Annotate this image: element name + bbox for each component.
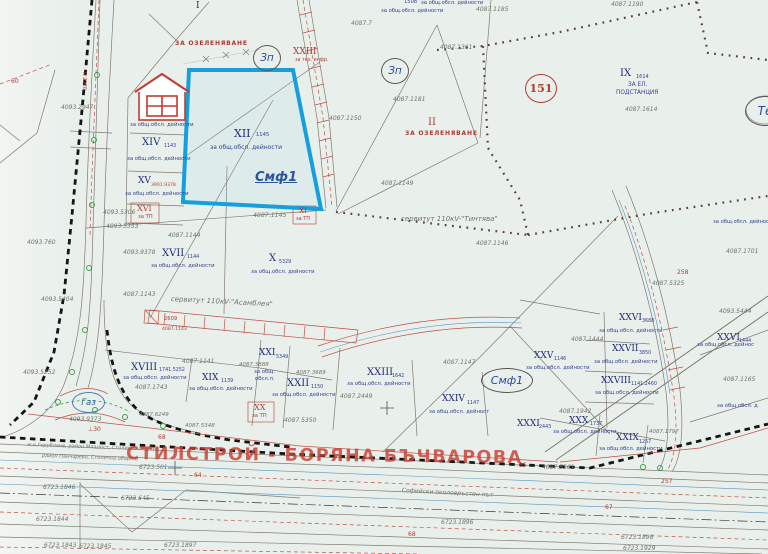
map-label: 4087.1150 — [329, 116, 361, 122]
map-label: XXVI — [619, 314, 642, 323]
map-label: за общ.обсл. дейности — [151, 264, 215, 269]
map-label: за общ.обсл. дейности — [347, 382, 411, 387]
map-linework — [0, 0, 768, 554]
map-label: Смф1 — [255, 171, 297, 184]
map-label: 4087.1190 — [611, 2, 643, 8]
map-label: XXIII — [367, 368, 393, 378]
map-label: 257 — [661, 479, 672, 485]
zone-circle-151: 151 — [525, 74, 557, 103]
map-label: 1146 — [554, 358, 566, 363]
map-label: 1614 — [636, 75, 649, 80]
map-label: 68 — [408, 532, 416, 538]
map-label: за тех. инфр. — [295, 59, 329, 64]
map-label: сервитут 110кV-"Тинтява" — [401, 216, 498, 223]
map-label: за общ.обсл. дейности — [595, 391, 659, 396]
map-label: ЗА ЕЛ. — [628, 83, 647, 89]
map-label: XXX — [569, 417, 588, 426]
map-label: X — [269, 254, 276, 264]
map-label: за общ.обсл. дейности — [130, 123, 194, 128]
map-label: 4087.1149 — [381, 181, 413, 187]
map-label: 4087.5325 — [652, 281, 684, 287]
zone-label: Зп — [260, 52, 274, 64]
map-label: 1141.2460 — [631, 383, 657, 388]
boundary-x-marks — [203, 49, 249, 62]
map-label: за общ.обсл. дейности — [526, 366, 590, 371]
map-label: за общ.обсл. дейности — [123, 376, 187, 381]
map-label: XXV — [534, 352, 553, 361]
map-label: 6723.1843 — [44, 543, 76, 549]
map-label: 67 — [605, 505, 613, 511]
zone-circle-zp-2: Зп — [381, 58, 409, 84]
map-label: за общ.обсл. дейности — [381, 9, 443, 14]
map-label: 4087.3689 — [296, 371, 326, 377]
house-icon — [135, 74, 189, 120]
zone-label: Газ — [81, 398, 95, 408]
map-label: 4087.1143 — [162, 328, 187, 333]
map-label: XXI — [259, 349, 275, 358]
map-label: 2609 — [164, 317, 177, 322]
subject-parcel-outline — [183, 70, 321, 209]
map-label: 4087.1145 — [253, 213, 286, 219]
zone-label: Смф1 — [491, 374, 523, 387]
map-label: за общ.обсл. дейности — [210, 145, 282, 151]
map-label: XXVIII — [601, 377, 631, 386]
map-label: 4093.5353 — [106, 224, 138, 230]
map-label: 4087.1444 — [571, 337, 603, 343]
map-label: 6723.1896 — [441, 520, 473, 526]
map-label: за общ.обсл. д — [717, 404, 758, 409]
map-label: 4087.1181 — [393, 97, 425, 103]
map-label: XV — [138, 177, 151, 186]
map-label: XXII — [287, 379, 309, 389]
map-label: 1150 — [311, 386, 323, 391]
map-label: 4087.6249 — [139, 413, 169, 419]
map-label: I — [196, 2, 200, 11]
map-label: 6723.1846 — [43, 485, 75, 491]
map-label: 4087.1701 — [726, 249, 758, 255]
map-label: 60 — [11, 79, 19, 85]
map-label: ⊥30 — [88, 427, 101, 433]
map-label: 4087.5361 — [542, 465, 574, 471]
map-label: 4093.9373 — [69, 417, 101, 423]
map-label: XXXI — [517, 420, 540, 429]
map-label: 6723.1845 — [79, 544, 111, 550]
map-label: 6723.1844 — [36, 517, 68, 523]
map-label: 4087.1144 — [168, 233, 200, 239]
map-label: за общ.обсл. дейности — [553, 430, 617, 435]
map-label: XII — [234, 128, 251, 139]
map-label: 1741.5252 — [159, 369, 185, 374]
zone-label: Те — [758, 104, 768, 118]
map-label: 4093.760 — [27, 240, 56, 246]
map-label: 3850 — [639, 352, 651, 357]
map-label: 1642 — [392, 375, 404, 380]
map-label: 4087.1614 — [625, 107, 657, 113]
map-label: за общ.обсл. дейнос — [697, 343, 754, 348]
map-label: XX — [254, 404, 265, 412]
map-label: XIX — [202, 374, 218, 383]
map-label: XVII — [162, 249, 184, 259]
map-label: 5329 — [279, 261, 291, 266]
map-label: 4087.1141 — [182, 359, 214, 365]
map-label: XXVII — [612, 345, 638, 354]
map-label: XIV — [142, 138, 160, 148]
map-label: 4087.7 — [351, 21, 372, 27]
map-label: 6723.1897 — [164, 543, 196, 549]
map-label: 6723.645 — [121, 496, 150, 502]
map-label: 1147 — [467, 402, 479, 407]
zone-label: 151 — [530, 82, 553, 95]
map-label: IX — [620, 69, 631, 79]
surveyed-boundary-dotted — [336, 2, 768, 235]
map-label: обсл.п. — [255, 377, 275, 382]
map-label: 3901.9378 — [151, 184, 176, 189]
map-label: за общ.обсл. дейности — [189, 387, 253, 392]
map-label: за ТП — [296, 217, 310, 222]
map-label: 4087.5348 — [185, 424, 215, 430]
map-label: за ТП — [252, 414, 267, 419]
map-label: 4087.2449 — [340, 394, 372, 400]
map-label: 4093.5252 — [23, 370, 55, 376]
map-label: за общ.обсл. дейности — [125, 192, 189, 197]
map-label: 4087.1185 — [476, 7, 508, 13]
regulation-lines-red-dashed — [0, 0, 768, 554]
map-label: XXIV — [442, 395, 465, 404]
map-label: 1144 — [187, 256, 199, 261]
map-label: 4093.9378 — [123, 250, 155, 256]
map-label: за общ.обсл. дейности — [127, 157, 191, 162]
map-label: 4087.1797 — [649, 430, 679, 436]
map-label: 4087.1743 — [135, 385, 167, 391]
map-label: 258 — [677, 270, 688, 276]
map-label: 4093.2947 — [61, 105, 93, 111]
map-label: за ТП — [138, 215, 153, 220]
zone-circle-smf1: Смф1 — [481, 368, 533, 393]
map-label: 4087.1165 — [723, 377, 755, 383]
map-label: 1145 — [256, 133, 269, 138]
map-label: 2443 — [539, 426, 551, 431]
map-label: XVI — [137, 205, 152, 213]
map-label: 4087.3888 — [239, 363, 269, 369]
map-label: ПОДСТАНЦИЯ — [616, 91, 658, 97]
map-label: 6723.1929 — [623, 546, 655, 552]
map-label: за общ.обсл. дейности — [599, 329, 663, 334]
map-label: 4093.5306 — [103, 210, 135, 216]
map-label: XI — [299, 208, 307, 215]
map-label: XXIX — [616, 434, 639, 443]
map-label: II — [428, 118, 436, 128]
cadastral-map: IЗА ОЗЕЛЕНЯВАНЕXXIIIза тех. инфр.4087.11… — [0, 0, 768, 554]
map-label: ЗА ОЗЕЛЕНЯВАНЕ — [175, 41, 248, 47]
map-label: 4093.5444 — [719, 309, 751, 315]
map-label: за общ.обсл. дейности — [251, 270, 315, 275]
map-label: 4087.1361 — [440, 45, 472, 51]
zone-label: Зп — [388, 65, 402, 77]
map-label: XXIII — [293, 48, 316, 57]
zone-circle-gas: Газ — [72, 392, 105, 413]
map-label: 68 — [158, 435, 166, 441]
map-label: за общ. — [254, 370, 275, 375]
map-label: за общ.обсл. дейности — [272, 393, 336, 398]
map-label: 1143 — [164, 145, 176, 150]
map-label: за общ.обсл. дейности — [599, 447, 663, 452]
map-label: 1139 — [221, 380, 233, 385]
map-label: 5349 — [276, 356, 288, 361]
map-label: за общ.обсл. дейност — [713, 220, 768, 225]
map-label: 4087.1147 — [443, 360, 475, 366]
map-label: R 2000 — [81, 72, 86, 90]
road-centerline — [0, 493, 768, 522]
map-label: 6723.1898 — [621, 535, 653, 541]
map-label: за общ.обсл. дейности — [594, 360, 658, 365]
map-label: 4093.5404 — [41, 297, 73, 303]
map-label: 3688 — [642, 320, 654, 325]
map-label: 4087.1942 — [559, 409, 591, 415]
map-label: 4087.1143 — [123, 292, 155, 298]
map-label: 64 — [194, 473, 202, 479]
map-label: XVIII — [131, 363, 157, 373]
map-label: 1737 — [590, 423, 602, 428]
map-label: 6723.501 — [139, 465, 168, 471]
map-label: за общ.обсл. дейности — [421, 1, 483, 6]
map-label: 1508 — [404, 0, 417, 5]
watermark: СТИЛСТРОЙ - БОРЯНА БЪЧВАРОВА — [126, 444, 523, 468]
map-label: за общ.обсл. дейност — [429, 410, 489, 415]
map-label: ЗА ОЗЕЛЕНЯВАНЕ — [405, 131, 478, 137]
map-label: 4087.1146 — [476, 241, 508, 247]
zone-circle-zp-1: Зп — [253, 45, 281, 71]
parcel-lines — [0, 0, 768, 554]
map-label: 4087.5350 — [284, 418, 316, 424]
